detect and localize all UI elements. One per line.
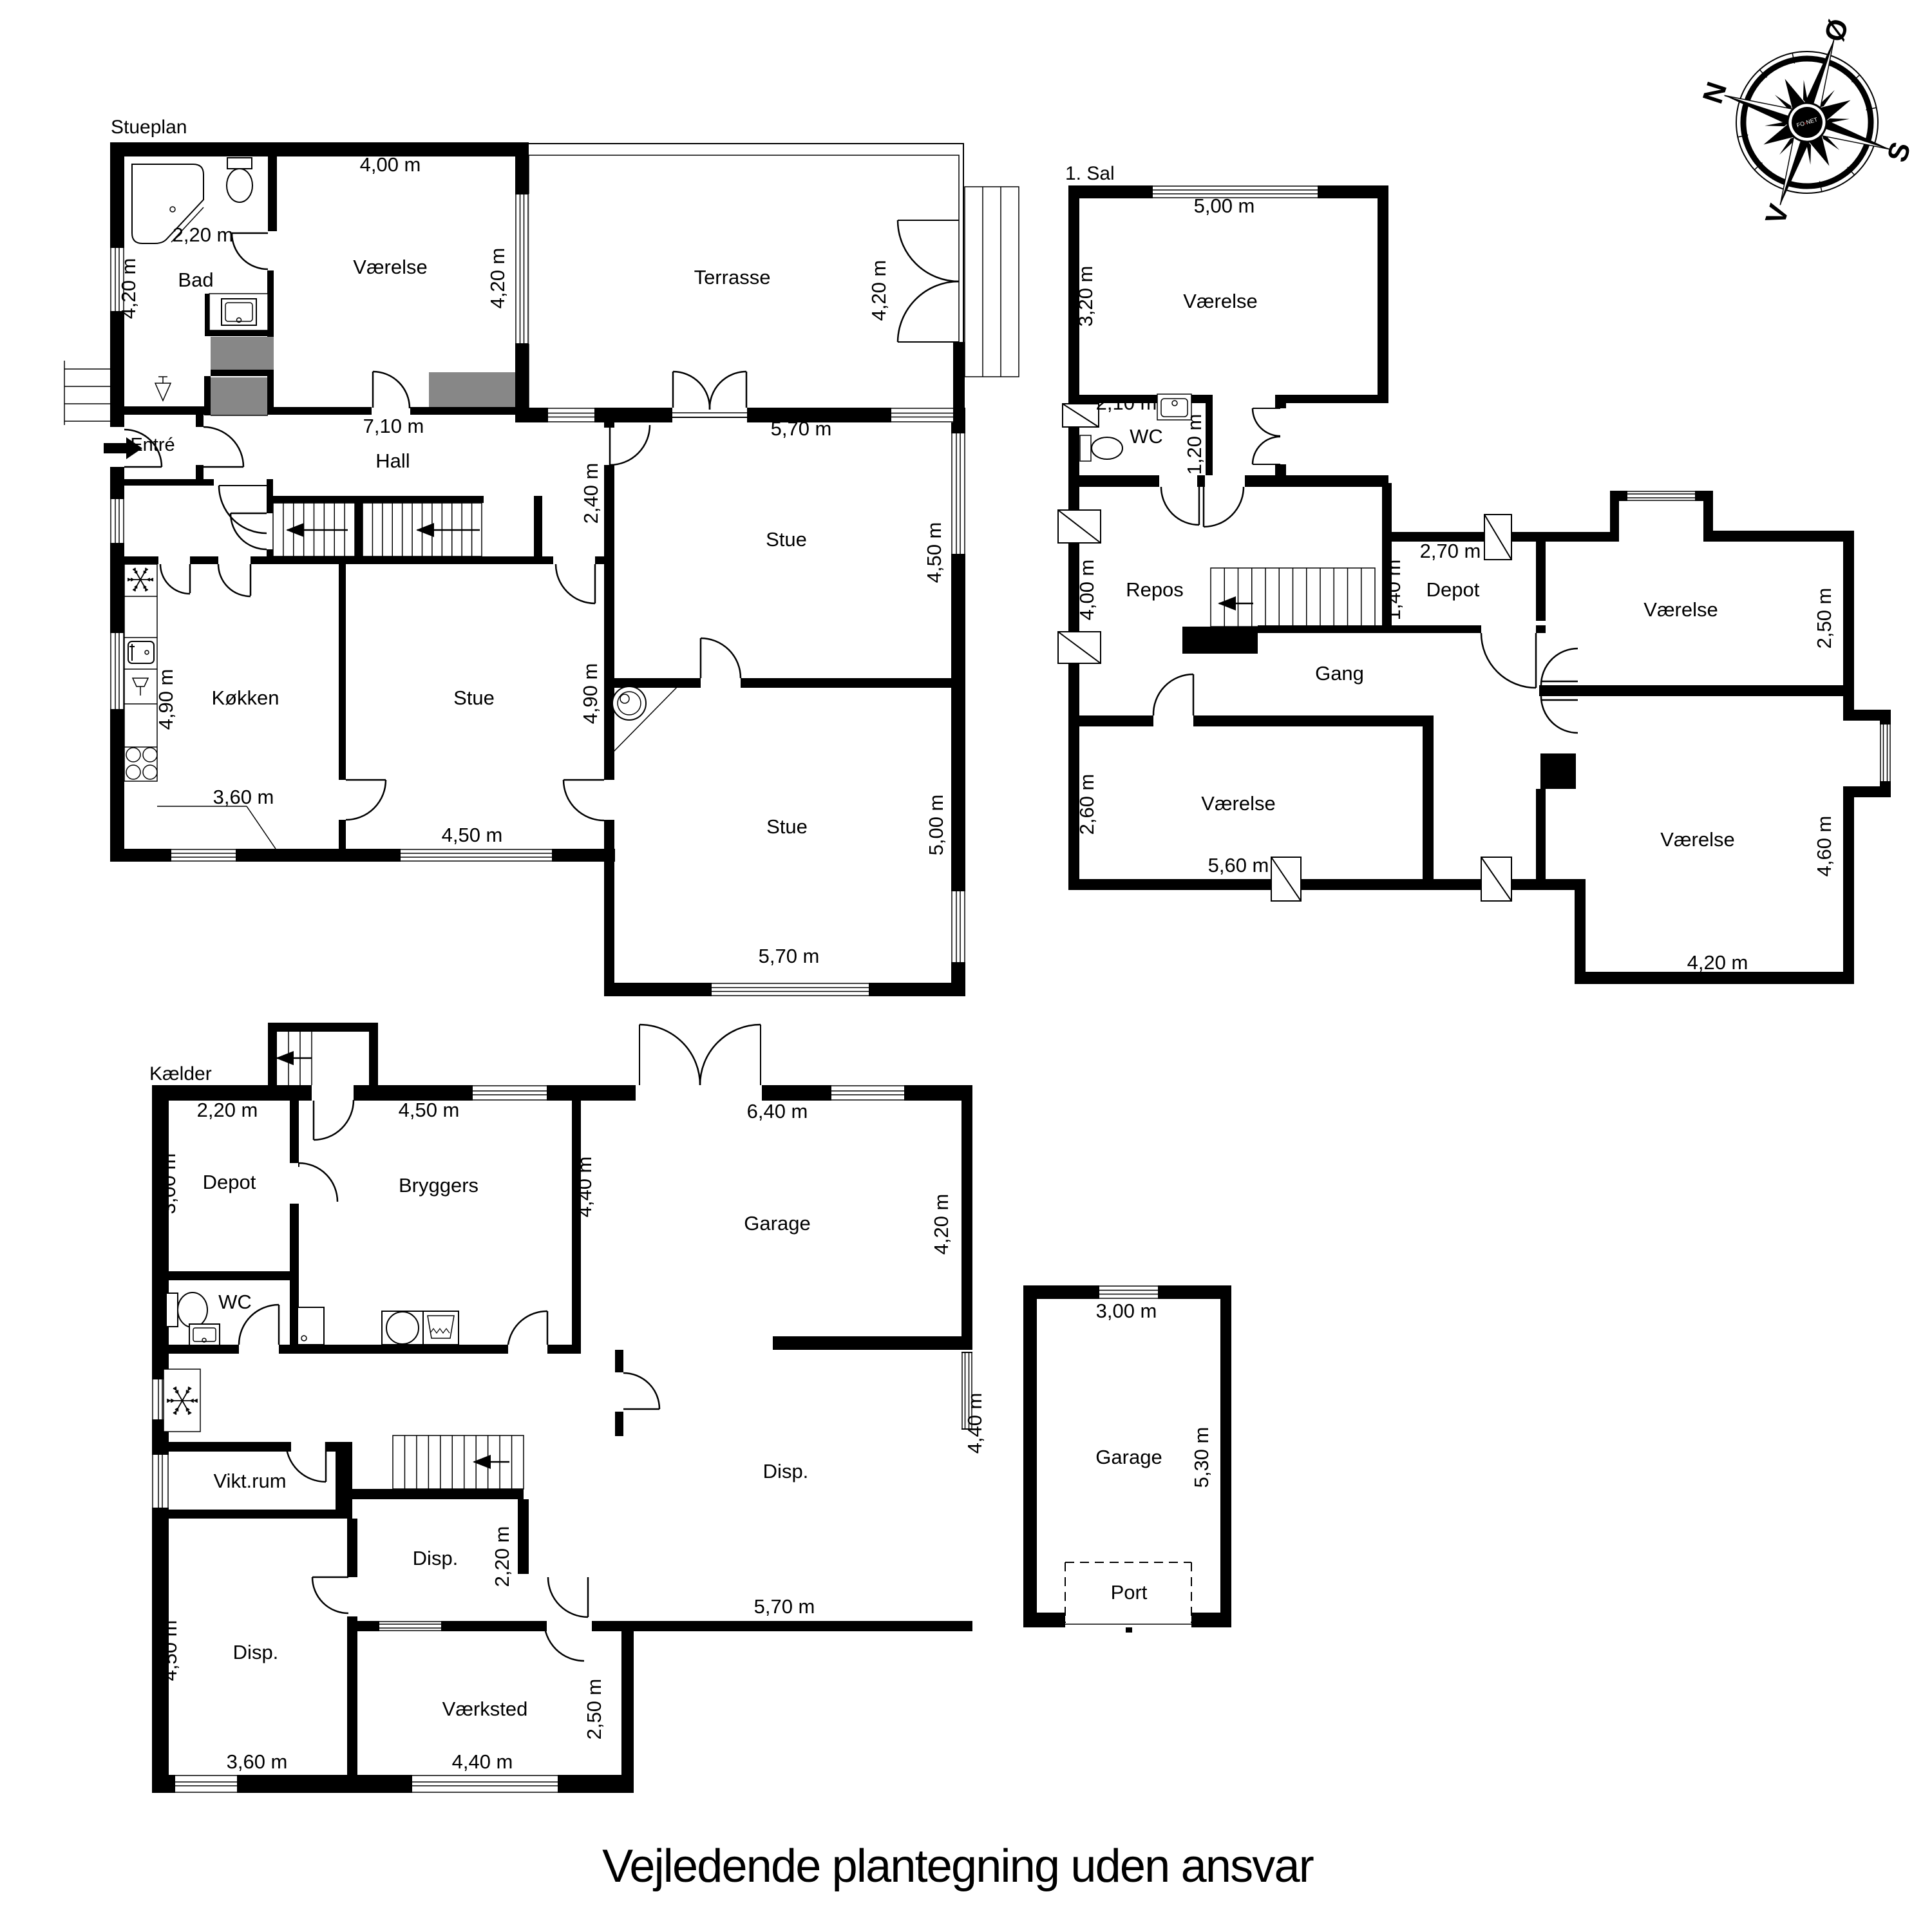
svg-text:4,50 m: 4,50 m xyxy=(442,824,503,846)
svg-text:Værelse: Værelse xyxy=(1201,792,1275,815)
svg-text:Værelse: Værelse xyxy=(1643,598,1718,621)
svg-text:4,90 m: 4,90 m xyxy=(579,663,601,724)
svg-text:4,50 m: 4,50 m xyxy=(923,522,945,583)
svg-text:2,10 m: 2,10 m xyxy=(1096,392,1157,414)
svg-text:Stueplan: Stueplan xyxy=(111,117,187,138)
svg-text:Hall: Hall xyxy=(375,450,410,472)
svg-text:WC: WC xyxy=(1130,425,1163,448)
svg-text:5,00 m: 5,00 m xyxy=(925,795,947,856)
svg-text:Bad: Bad xyxy=(178,269,213,291)
svg-text:Garage: Garage xyxy=(744,1212,810,1235)
svg-text:2,20 m: 2,20 m xyxy=(491,1526,513,1587)
svg-text:5,70 m: 5,70 m xyxy=(754,1595,815,1618)
svg-text:Disp.: Disp. xyxy=(763,1460,809,1482)
svg-text:Entré: Entré xyxy=(130,435,175,455)
svg-text:5,70 m: 5,70 m xyxy=(759,945,820,967)
svg-text:4,60 m: 4,60 m xyxy=(1813,816,1835,877)
svg-text:1,20 m: 1,20 m xyxy=(1183,414,1206,475)
svg-text:Garage: Garage xyxy=(1095,1446,1162,1468)
svg-text:6,40 m: 6,40 m xyxy=(747,1100,808,1122)
svg-text:Værelse: Værelse xyxy=(353,256,427,278)
svg-text:5,60 m: 5,60 m xyxy=(1208,854,1269,876)
svg-text:WC: WC xyxy=(218,1291,252,1313)
svg-text:4,20 m: 4,20 m xyxy=(117,258,140,319)
svg-text:2,70 m: 2,70 m xyxy=(1420,540,1481,562)
svg-text:2,20 m: 2,20 m xyxy=(173,223,234,246)
svg-text:2,40 m: 2,40 m xyxy=(580,463,602,524)
svg-text:2,50 m: 2,50 m xyxy=(1813,588,1835,649)
svg-text:4,00 m: 4,00 m xyxy=(360,153,421,176)
svg-text:Stue: Stue xyxy=(766,528,807,551)
svg-text:Værelse: Værelse xyxy=(1660,828,1734,851)
svg-text:Disp.: Disp. xyxy=(413,1547,459,1569)
svg-text:Værelse: Værelse xyxy=(1183,290,1257,312)
svg-text:Stue: Stue xyxy=(453,687,495,709)
svg-text:4,00 m: 4,00 m xyxy=(1075,560,1098,621)
svg-text:4,40 m: 4,40 m xyxy=(573,1157,596,1218)
svg-text:Bryggers: Bryggers xyxy=(399,1174,478,1197)
svg-text:2,20 m: 2,20 m xyxy=(197,1099,258,1121)
svg-text:Vejledende plantegning uden an: Vejledende plantegning uden ansvar xyxy=(602,1841,1314,1892)
svg-text:4,40 m: 4,40 m xyxy=(963,1393,986,1454)
svg-text:3,20 m: 3,20 m xyxy=(1074,266,1097,327)
svg-text:4,40 m: 4,40 m xyxy=(452,1750,513,1773)
svg-text:4,20 m: 4,20 m xyxy=(930,1194,952,1255)
svg-text:4,50 m: 4,50 m xyxy=(158,1620,181,1681)
svg-text:2,60 m: 2,60 m xyxy=(1075,774,1098,835)
svg-text:2,50 m: 2,50 m xyxy=(583,1679,605,1740)
svg-text:4,20 m: 4,20 m xyxy=(486,248,509,309)
svg-text:3,60 m: 3,60 m xyxy=(213,786,274,808)
svg-text:Gang: Gang xyxy=(1315,662,1364,685)
svg-text:5,70 m: 5,70 m xyxy=(771,417,832,440)
svg-text:Depot: Depot xyxy=(1426,578,1480,601)
svg-text:4,50 m: 4,50 m xyxy=(399,1099,460,1121)
svg-text:Stue: Stue xyxy=(766,815,808,838)
svg-text:Vikt.rum: Vikt.rum xyxy=(213,1470,286,1492)
svg-text:Værksted: Værksted xyxy=(442,1698,528,1720)
svg-text:5,30 m: 5,30 m xyxy=(1190,1427,1213,1488)
svg-text:Depot: Depot xyxy=(203,1171,256,1193)
svg-text:3,60 m: 3,60 m xyxy=(227,1750,288,1773)
svg-text:Terrasse: Terrasse xyxy=(694,266,771,289)
svg-text:4,20 m: 4,20 m xyxy=(867,260,890,321)
svg-text:Kælder: Kælder xyxy=(149,1063,212,1084)
svg-text:7,10 m: 7,10 m xyxy=(363,415,424,437)
svg-text:3,00 m: 3,00 m xyxy=(1096,1300,1157,1322)
svg-text:1,40 m: 1,40 m xyxy=(1382,560,1405,621)
svg-text:4,90 m: 4,90 m xyxy=(155,669,177,730)
svg-text:1. Sal: 1. Sal xyxy=(1065,163,1115,184)
svg-text:Repos: Repos xyxy=(1126,578,1184,601)
svg-text:3,00 m: 3,00 m xyxy=(157,1153,180,1215)
svg-text:5,00 m: 5,00 m xyxy=(1194,194,1255,217)
svg-text:4,20 m: 4,20 m xyxy=(1687,951,1748,974)
svg-text:Disp.: Disp. xyxy=(233,1641,279,1663)
svg-text:Køkken: Køkken xyxy=(211,687,279,709)
svg-text:Port: Port xyxy=(1111,1581,1148,1604)
